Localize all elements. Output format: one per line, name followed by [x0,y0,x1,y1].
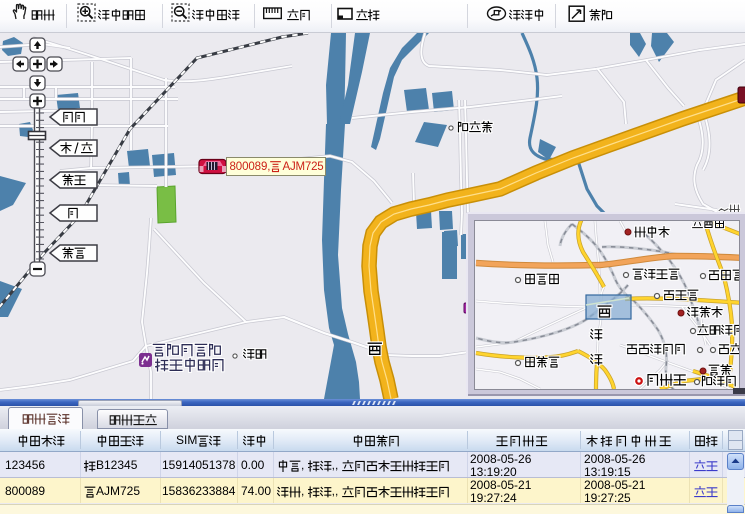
svg-text:AJM725: AJM725 [283,161,324,173]
svg-text:800089,: 800089, [230,161,271,173]
